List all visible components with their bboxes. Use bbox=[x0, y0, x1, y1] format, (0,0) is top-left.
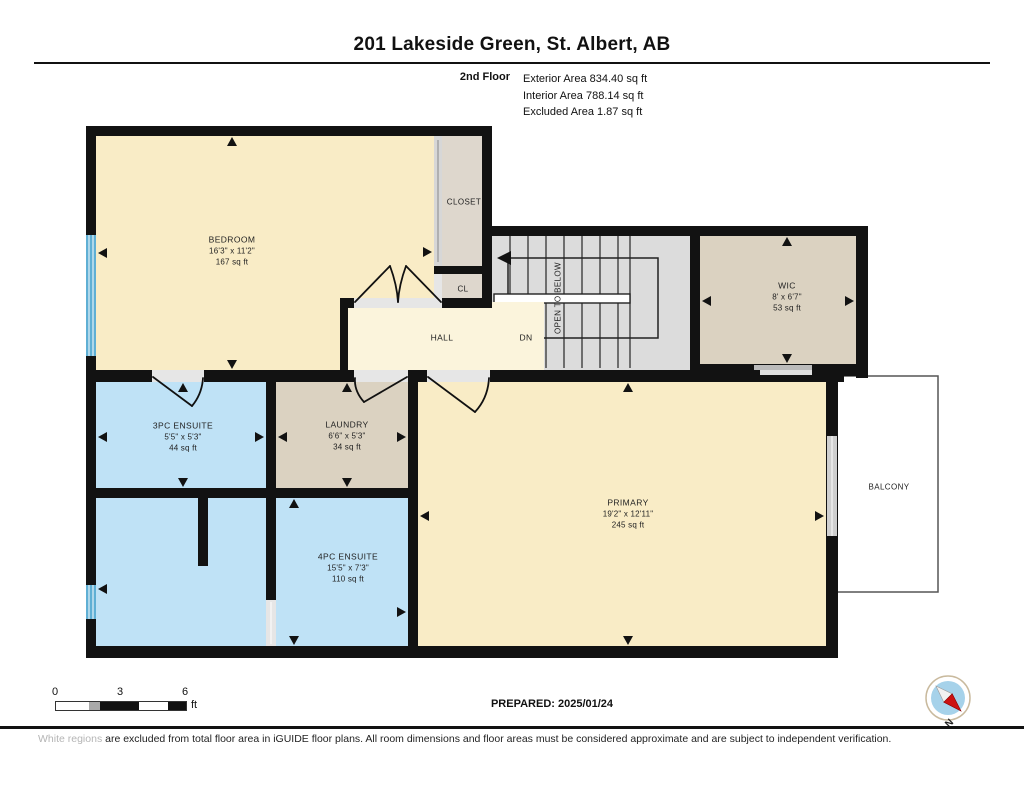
wic-slider bbox=[754, 365, 812, 370]
cl-label: CL bbox=[457, 284, 468, 295]
primary-label: PRIMARY 19'2" x 12'11" 245 sq ft bbox=[603, 498, 654, 531]
disclaimer-light-text: White regions bbox=[38, 733, 102, 745]
footer-divider bbox=[0, 726, 1024, 729]
disclaimer-text: are excluded from total floor area in iG… bbox=[102, 733, 891, 745]
scale-tick-3: 3 bbox=[117, 686, 123, 698]
disclaimer: White regions are excluded from total fl… bbox=[38, 733, 891, 745]
scale-tick-6: 6 bbox=[182, 686, 188, 698]
ensuite3-label: 3PC ENSUITE 5'5" x 5'3" 44 sq ft bbox=[153, 421, 213, 454]
closet-floor bbox=[434, 132, 488, 304]
hall-label: HALL bbox=[431, 333, 454, 344]
balcony-label: BALCONY bbox=[868, 482, 909, 493]
ensuite4-label: 4PC ENSUITE 15'5" x 7'3" 110 sq ft bbox=[318, 552, 378, 585]
bedroom-label: BEDROOM 16'3" x 11'2" 167 sq ft bbox=[209, 235, 256, 268]
prepared-date: PREPARED: 2025/01/24 bbox=[491, 698, 613, 710]
open-to-below-label: OPEN TO BELOW bbox=[553, 262, 564, 334]
floorplan-drawing bbox=[0, 0, 1024, 791]
stairs-dn-label: DN bbox=[519, 333, 532, 344]
wic-label: WIC 8' x 6'7" 53 sq ft bbox=[772, 281, 802, 314]
ensuite4-left-floor bbox=[92, 492, 274, 650]
scale-unit: ft bbox=[191, 699, 197, 711]
scale-bar bbox=[55, 701, 187, 711]
floorplan-page: 201 Lakeside Green, St. Albert, AB 2nd F… bbox=[0, 0, 1024, 791]
scale-tick-0: 0 bbox=[52, 686, 58, 698]
closet-label: CLOSET bbox=[447, 197, 481, 208]
laundry-label: LAUNDRY 6'6" x 5'3" 34 sq ft bbox=[325, 420, 368, 453]
